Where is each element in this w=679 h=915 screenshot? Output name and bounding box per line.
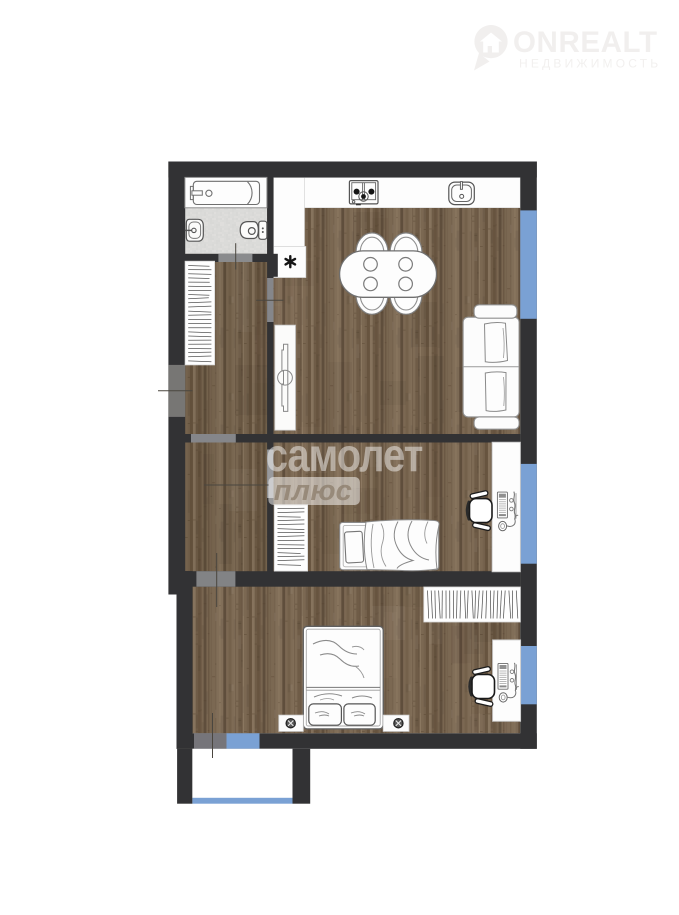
svg-text:ONREALT: ONREALT bbox=[513, 26, 658, 59]
svg-text:НЕДВИЖИМОСТЬ: НЕДВИЖИМОСТЬ bbox=[519, 57, 661, 71]
svg-text:плюс: плюс bbox=[274, 475, 353, 507]
svg-text:самолет: самолет bbox=[266, 430, 423, 482]
